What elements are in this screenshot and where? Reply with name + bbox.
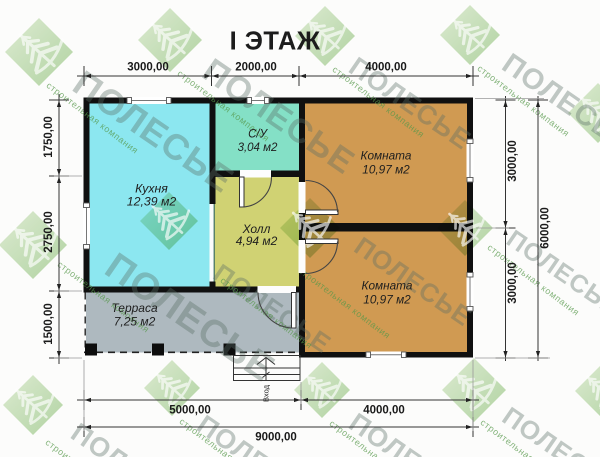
svg-text:3,04 м2: 3,04 м2 — [238, 142, 278, 154]
svg-text:7,25 м2: 7,25 м2 — [114, 314, 156, 328]
svg-text:2750,00: 2750,00 — [43, 211, 55, 253]
svg-text:4000,00: 4000,00 — [365, 62, 407, 74]
svg-text:10,97 м2: 10,97 м2 — [363, 293, 411, 307]
svg-text:12,39 м2: 12,39 м2 — [127, 195, 177, 209]
svg-text:3000,00: 3000,00 — [127, 62, 169, 74]
svg-text:2000,00: 2000,00 — [235, 62, 277, 74]
svg-text:Комната: Комната — [361, 149, 412, 163]
svg-text:1750,00: 1750,00 — [43, 116, 55, 158]
svg-text:Терраса: Терраса — [111, 301, 158, 315]
svg-text:1500,00: 1500,00 — [43, 303, 55, 345]
svg-text:9000,00: 9000,00 — [255, 432, 297, 444]
svg-text:Комната: Комната — [362, 279, 413, 293]
svg-text:4,94 м2: 4,94 м2 — [236, 234, 278, 248]
svg-text:6000,00: 6000,00 — [540, 207, 552, 249]
svg-text:Вход: Вход — [262, 384, 271, 402]
svg-text:Кухня: Кухня — [135, 182, 168, 196]
svg-text:5000,00: 5000,00 — [169, 405, 211, 417]
svg-text:3000,00: 3000,00 — [507, 140, 519, 182]
svg-text:I ЭТАЖ: I ЭТАЖ — [230, 28, 321, 56]
svg-text:4000,00: 4000,00 — [363, 405, 405, 417]
svg-text:С/У: С/У — [248, 128, 269, 140]
svg-text:3000,00: 3000,00 — [507, 262, 519, 304]
svg-text:10,97 м2: 10,97 м2 — [362, 163, 410, 177]
